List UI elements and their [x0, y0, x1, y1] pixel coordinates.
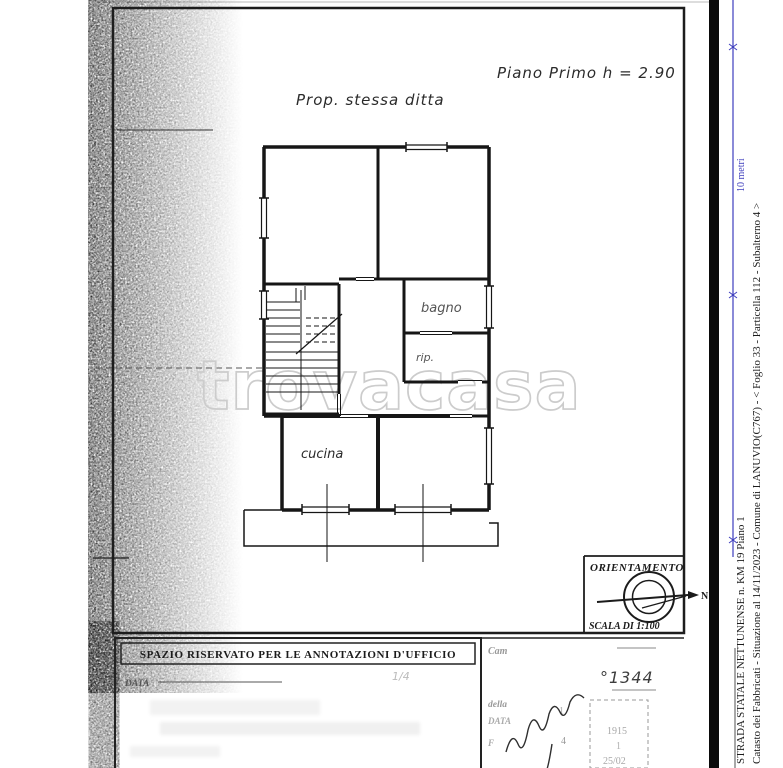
- margin-text: Catasto dei Fabbricati - Situazione al 1…: [735, 203, 763, 764]
- office-line-2: della: [488, 700, 507, 710]
- room-label-rip: rip.: [416, 351, 434, 364]
- office-line-3: DATA: [487, 716, 511, 726]
- scale-bar: 10 metri: [729, 0, 747, 557]
- orientation-title: ORIENTAMENTO: [590, 562, 684, 574]
- room-label-bagno: bagno: [421, 301, 462, 316]
- faded-stamp-smudges: [130, 700, 420, 757]
- office-line-1: Cam: [488, 646, 508, 657]
- signature-tail: [545, 744, 552, 768]
- protocol-number: °1344: [600, 668, 654, 687]
- margin-line-2: STRADA STATALE NETTUNENSE n. KM 19 Piano…: [735, 516, 747, 764]
- office-mark-2: 4: [561, 736, 566, 747]
- scale-bar-label: 10 metri: [736, 158, 747, 192]
- scale-label: SCALA DI 1:100: [589, 621, 660, 632]
- north-label: N: [701, 591, 709, 602]
- interior-walls: [264, 147, 489, 510]
- office-line-4: F: [487, 738, 494, 748]
- page-edge-band: [709, 0, 719, 768]
- office-section: Cam °1344 della DATA F 1 4 1915 1 25/02: [487, 646, 656, 768]
- annotations-title: SPAZIO RISERVATO PER LE ANNOTAZIONI D'UF…: [140, 649, 456, 661]
- signature-scribble: [506, 695, 584, 752]
- orientation-box: ORIENTAMENTO N SCALA DI 1:100: [584, 556, 709, 633]
- stamp-line-3: 25/02: [603, 756, 626, 767]
- stamp-line-1: 1915: [607, 726, 627, 737]
- annotations-strip: SPAZIO RISERVATO PER LE ANNOTAZIONI D'UF…: [115, 638, 684, 768]
- floor-note: Piano Primo h = 2.90: [497, 64, 676, 82]
- cadastral-floorplan-page: trovacasa: [0, 0, 783, 768]
- margin-line-1: Catasto dei Fabbricati - Situazione al 1…: [751, 203, 763, 764]
- date-note: 1/4: [392, 670, 410, 683]
- stamp-line-2: 1: [616, 741, 621, 752]
- room-label-cucina: cucina: [301, 447, 343, 462]
- date-label: DATA: [124, 679, 149, 689]
- property-note: Prop. stessa ditta: [296, 91, 445, 109]
- floorplan-drawing: trovacasa: [0, 0, 783, 768]
- balcony: [244, 510, 498, 546]
